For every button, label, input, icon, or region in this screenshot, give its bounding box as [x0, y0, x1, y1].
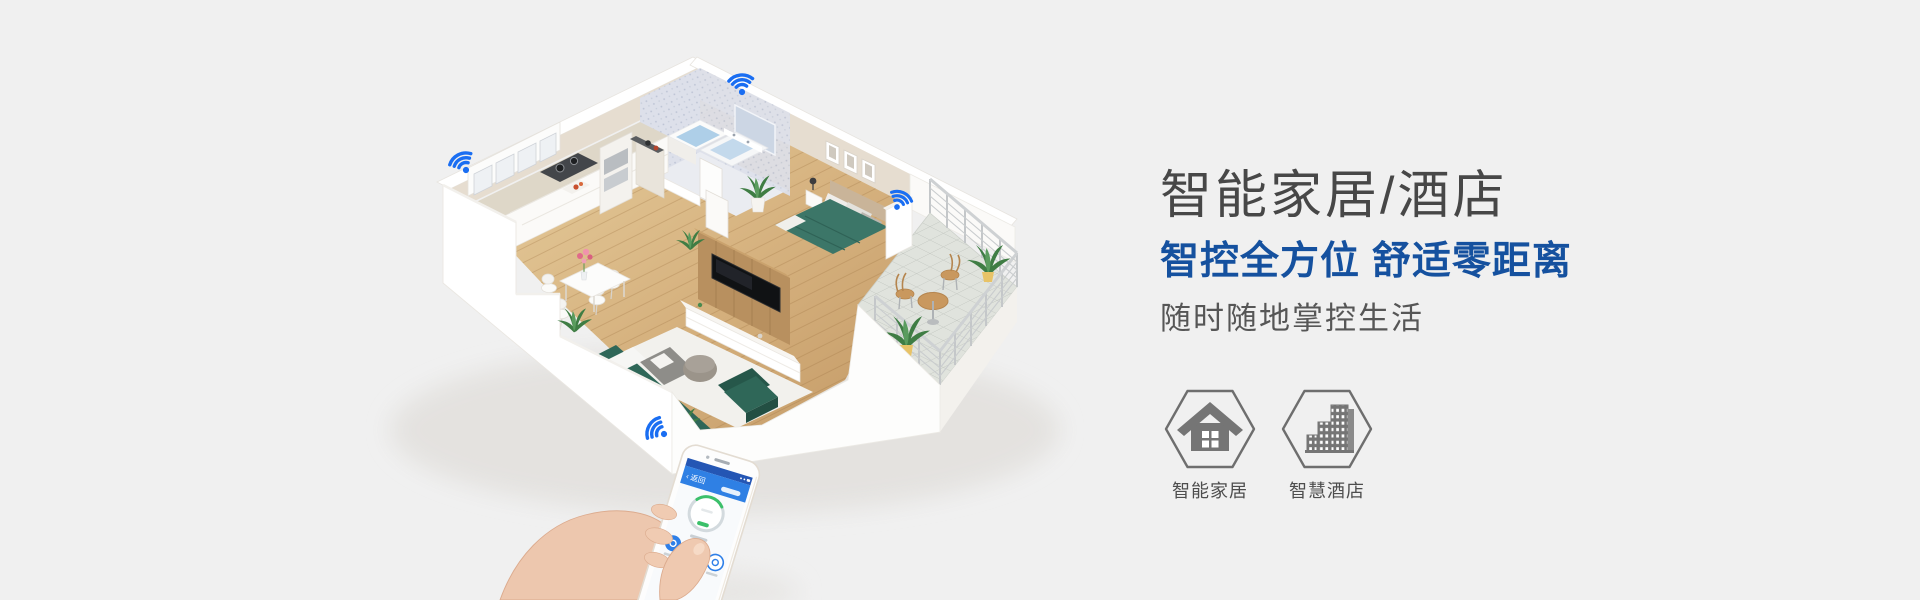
house-icon [1177, 402, 1243, 451]
feature-label: 智慧酒店 [1289, 477, 1365, 503]
buildings-icon [1305, 405, 1354, 453]
smart-home-hexagon-icon [1164, 388, 1256, 470]
smart-hotel-hexagon-icon [1281, 388, 1373, 470]
feature-label: 智能家居 [1172, 477, 1248, 503]
hero-subtitle: 智控全方位 舒适零距离 [1160, 241, 1720, 284]
feature-smart-hotel[interactable]: 智慧酒店 [1281, 388, 1373, 503]
hero-tagline: 随时随地掌控生活 [1160, 302, 1720, 336]
feature-list: 智能家居 智慧酒店 [1164, 388, 1373, 503]
hero-copy: 智能家居/酒店 智控全方位 舒适零距离 随时随地掌控生活 [1160, 168, 1720, 336]
feature-smart-home[interactable]: 智能家居 [1164, 388, 1256, 503]
hero-banner: ‹ 返回 [0, 0, 1920, 600]
bedside-lamp [810, 178, 817, 185]
page-title: 智能家居/酒店 [1160, 168, 1720, 225]
